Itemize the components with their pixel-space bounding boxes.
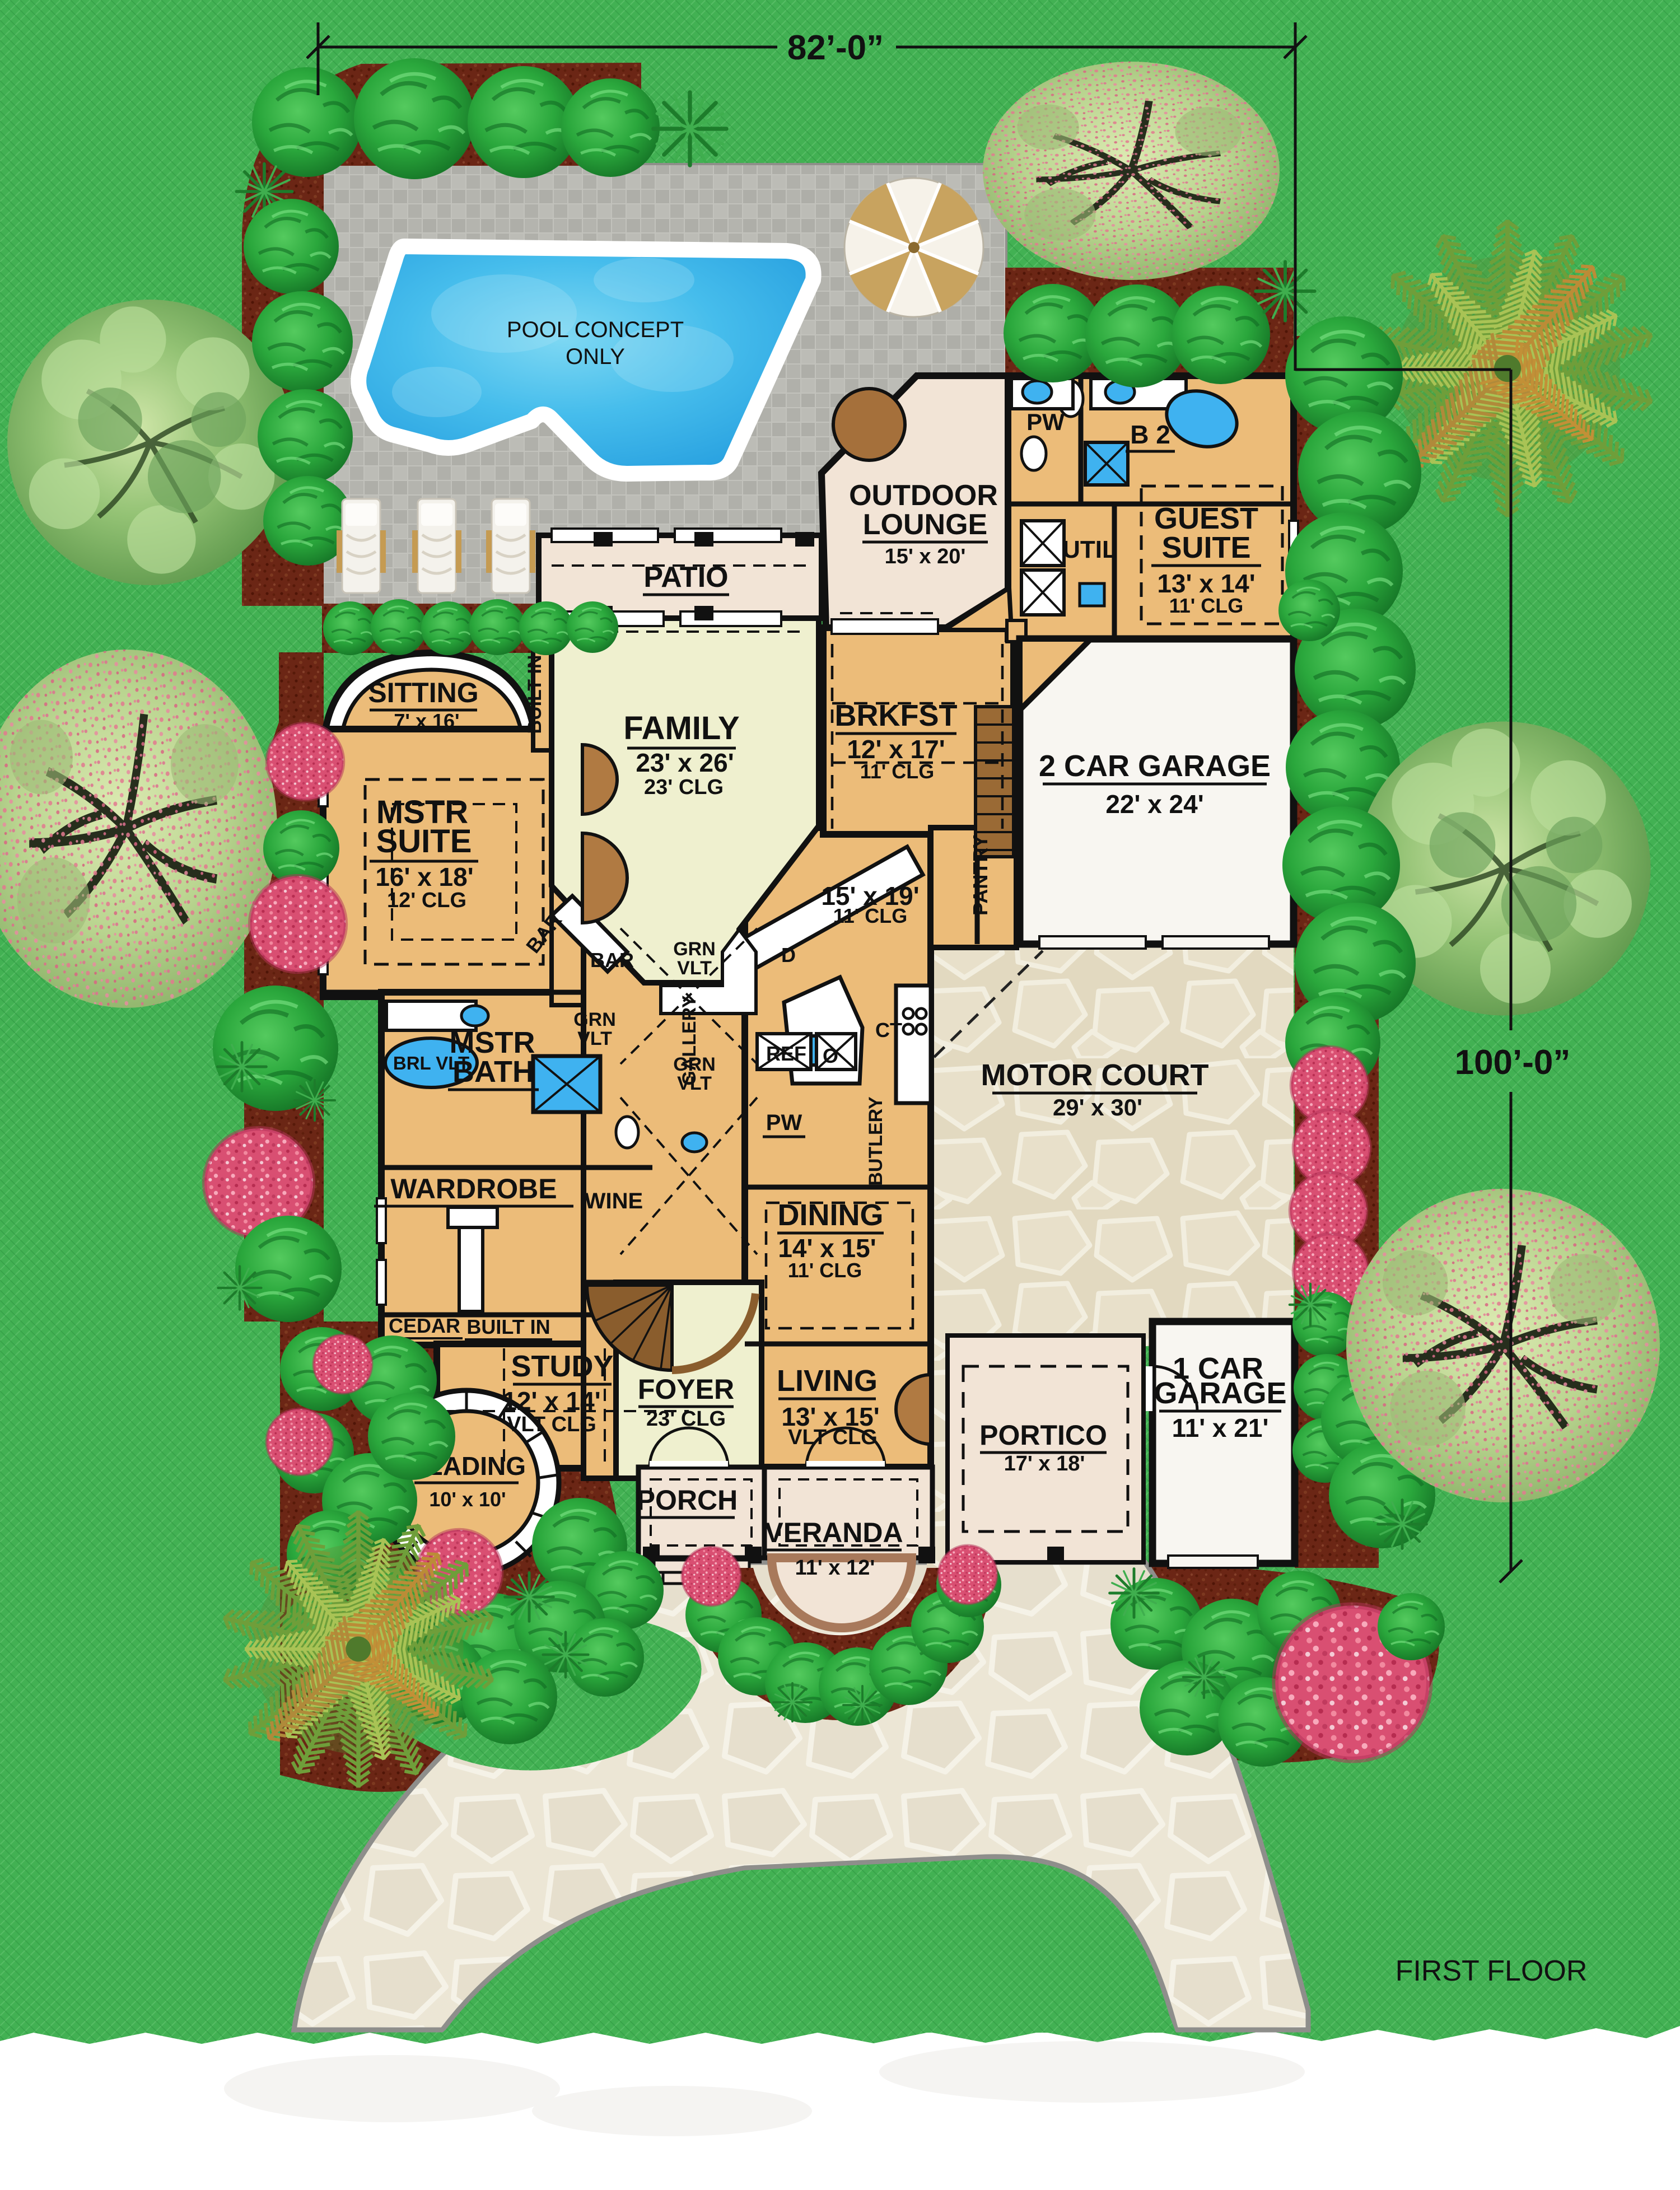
svg-text:2 CAR GARAGE: 2 CAR GARAGE	[1039, 749, 1271, 783]
svg-text:29' x 30': 29' x 30'	[1053, 1094, 1142, 1120]
svg-text:10' x 10': 10' x 10'	[429, 1488, 506, 1511]
svg-text:GRN: GRN	[673, 938, 716, 960]
svg-text:BRL VLT: BRL VLT	[393, 1053, 469, 1073]
svg-text:WINE: WINE	[585, 1189, 643, 1213]
svg-text:LOUNGE: LOUNGE	[863, 508, 987, 541]
svg-text:O: O	[823, 1044, 838, 1067]
svg-text:SITTING: SITTING	[368, 677, 478, 708]
svg-text:LIVING: LIVING	[777, 1364, 878, 1398]
svg-text:11' CLG: 11' CLG	[788, 1259, 862, 1282]
svg-text:15' x 20': 15' x 20'	[885, 545, 966, 568]
svg-text:GALLERY: GALLERY	[679, 995, 700, 1086]
svg-text:SUITE: SUITE	[1161, 531, 1250, 564]
svg-text:STUDY: STUDY	[511, 1350, 613, 1383]
svg-text:VLT: VLT	[677, 958, 712, 979]
svg-text:WARDROBE: WARDROBE	[390, 1173, 557, 1204]
svg-text:BUILT IN: BUILT IN	[524, 655, 545, 734]
svg-text:OUTDOOR: OUTDOOR	[849, 479, 998, 512]
svg-text:11' x 21': 11' x 21'	[1172, 1413, 1269, 1442]
svg-text:REF: REF	[766, 1042, 806, 1065]
svg-text:VLT CLG: VLT CLG	[507, 1413, 596, 1436]
svg-text:17' x 18': 17' x 18'	[1004, 1452, 1085, 1475]
svg-text:7' x 16': 7' x 16'	[394, 709, 459, 732]
svg-text:23' CLG: 23' CLG	[644, 776, 724, 799]
svg-text:GARAGE: GARAGE	[1154, 1376, 1286, 1410]
svg-text:BUTLERY: BUTLERY	[865, 1096, 886, 1186]
svg-text:PANTRY: PANTRY	[969, 835, 992, 916]
svg-text:D: D	[781, 944, 796, 966]
svg-text:PW: PW	[1026, 409, 1065, 435]
svg-text:BUILT IN: BUILT IN	[466, 1315, 550, 1338]
svg-text:BAR: BAR	[590, 949, 634, 972]
svg-text:PW: PW	[766, 1110, 802, 1135]
svg-text:PORCH: PORCH	[637, 1484, 738, 1516]
svg-text:GRN: GRN	[573, 1009, 616, 1030]
svg-text:B 2: B 2	[1130, 420, 1170, 449]
svg-text:12' x 14': 12' x 14'	[502, 1386, 600, 1416]
svg-text:PORTICO: PORTICO	[979, 1419, 1107, 1451]
svg-text:82’-0”: 82’-0”	[787, 29, 884, 67]
svg-text:UTIL: UTIL	[1062, 536, 1117, 563]
svg-text:VLT: VLT	[577, 1028, 612, 1049]
svg-text:DINING: DINING	[778, 1198, 884, 1232]
svg-text:11' CLG: 11' CLG	[833, 904, 908, 927]
svg-text:VLT CLG: VLT CLG	[788, 1426, 878, 1449]
svg-text:FOYER: FOYER	[638, 1374, 734, 1405]
svg-text:16' x 18': 16' x 18'	[375, 862, 473, 891]
svg-text:22' x 24': 22' x 24'	[1105, 790, 1203, 819]
svg-text:23' CLG: 23' CLG	[646, 1407, 726, 1431]
svg-text:MOTOR COURT: MOTOR COURT	[981, 1058, 1209, 1092]
svg-text:PATIO: PATIO	[643, 561, 728, 594]
svg-text:11' x 12': 11' x 12'	[795, 1556, 875, 1580]
svg-text:ONLY: ONLY	[566, 344, 625, 369]
svg-text:100’-0”: 100’-0”	[1455, 1043, 1571, 1082]
svg-text:11' CLG: 11' CLG	[1169, 594, 1244, 617]
svg-text:CT: CT	[875, 1019, 902, 1042]
svg-text:FIRST FLOOR: FIRST FLOOR	[1396, 1955, 1588, 1987]
svg-text:SUITE: SUITE	[376, 823, 472, 860]
svg-text:BRKFST: BRKFST	[835, 699, 958, 732]
svg-text:VERANDA: VERANDA	[764, 1517, 903, 1548]
svg-text:23' x 26': 23' x 26'	[636, 748, 734, 777]
svg-text:FAMILY: FAMILY	[623, 710, 739, 746]
svg-text:GUEST: GUEST	[1154, 502, 1258, 535]
svg-text:POOL CONCEPT: POOL CONCEPT	[507, 317, 684, 342]
svg-text:CEDAR: CEDAR	[389, 1314, 460, 1337]
svg-text:11' CLG: 11' CLG	[860, 760, 935, 783]
svg-text:12' CLG: 12' CLG	[387, 889, 466, 912]
